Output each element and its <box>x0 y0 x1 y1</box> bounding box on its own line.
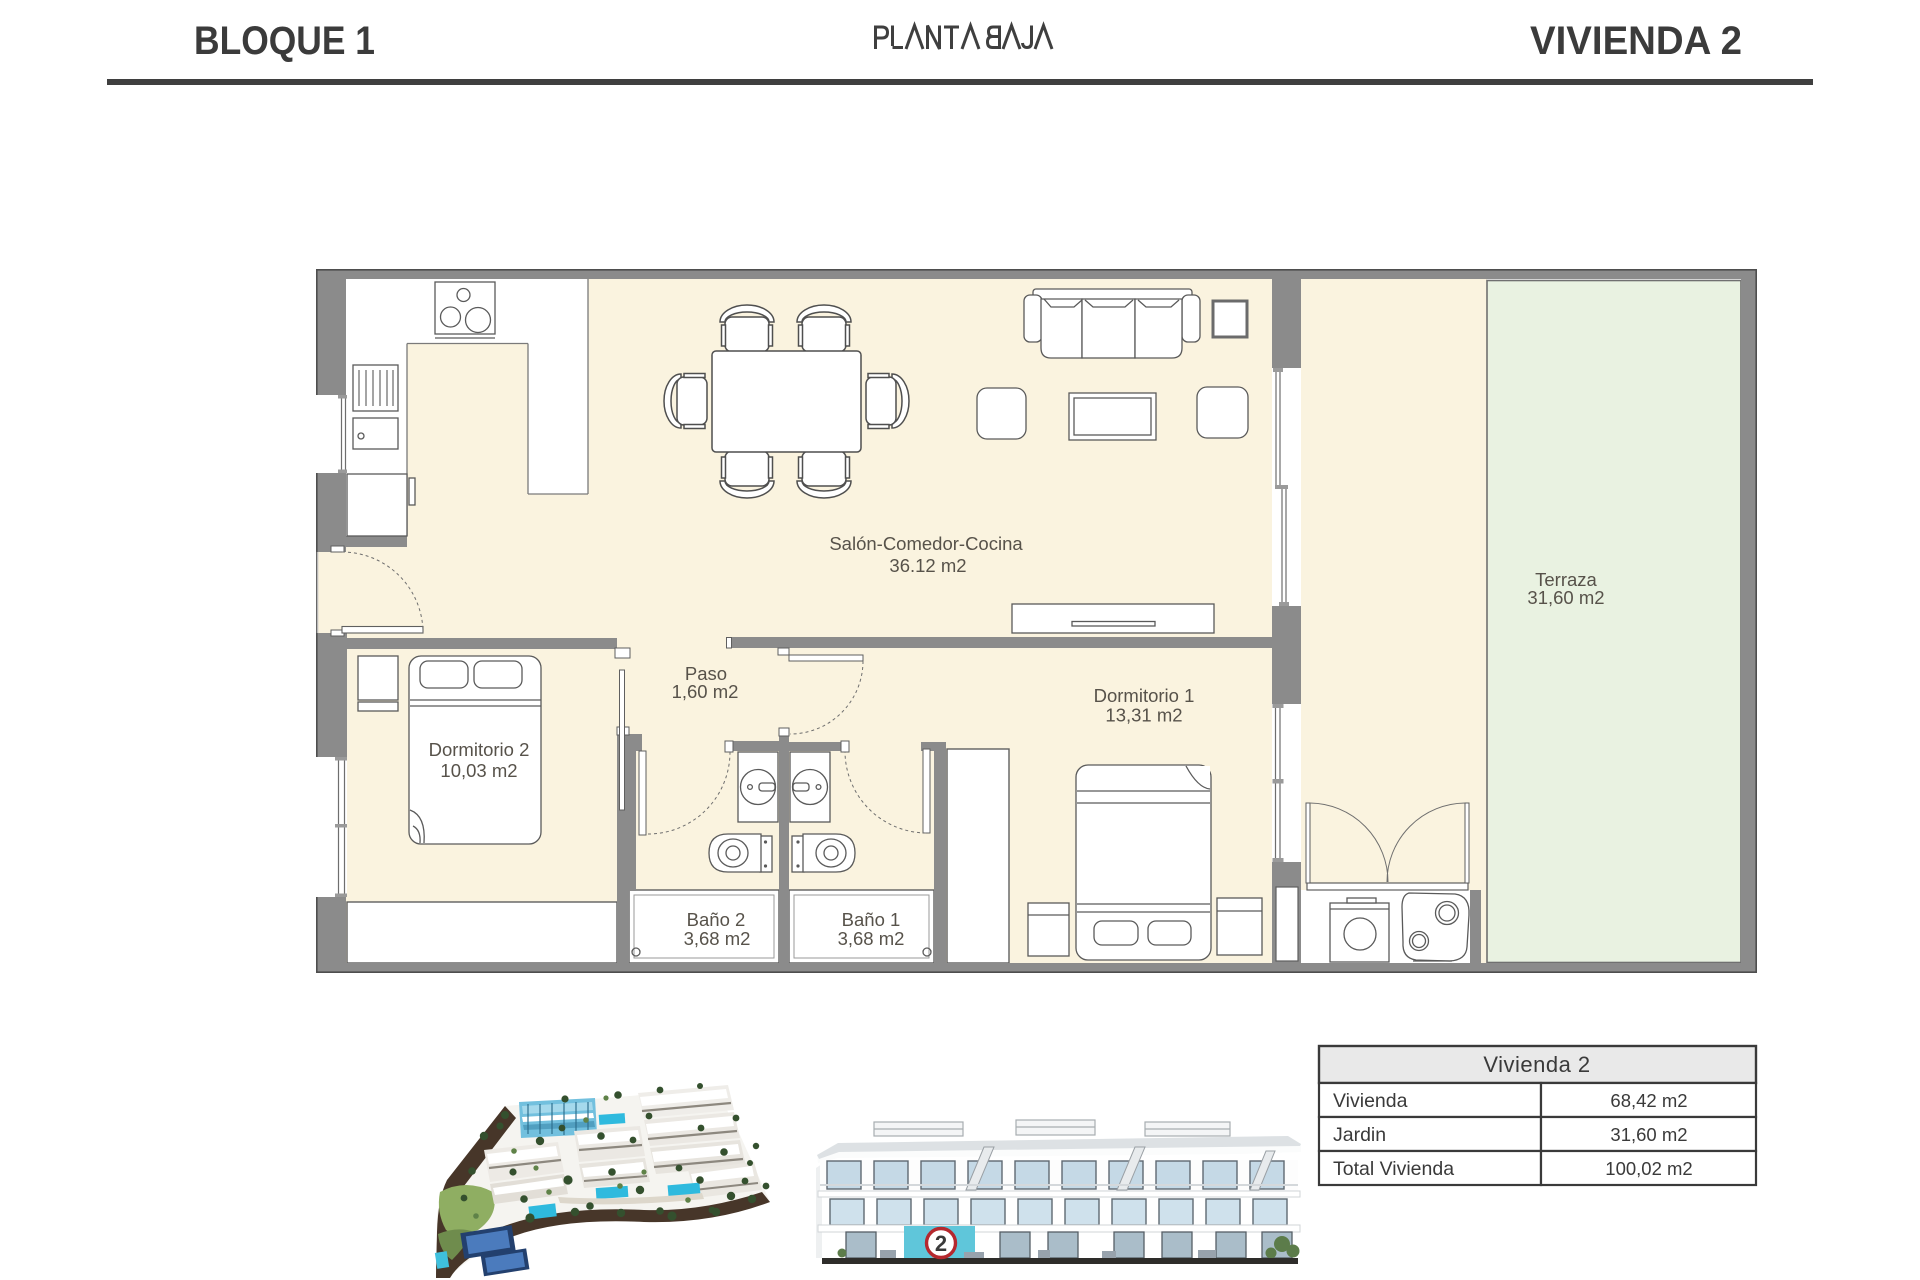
svg-text:13,31 m2: 13,31 m2 <box>1105 705 1182 726</box>
svg-text:31,60 m2: 31,60 m2 <box>1610 1124 1687 1145</box>
svg-text:Total Vivienda: Total Vivienda <box>1333 1158 1454 1180</box>
svg-text:100,02 m2: 100,02 m2 <box>1605 1158 1692 1179</box>
svg-text:Dormitorio 1: Dormitorio 1 <box>1094 685 1195 706</box>
svg-text:Dormitorio 2: Dormitorio 2 <box>429 739 530 760</box>
svg-text:VIVIENDA 2: VIVIENDA 2 <box>1530 19 1742 63</box>
svg-text:68,42 m2: 68,42 m2 <box>1610 1090 1687 1111</box>
svg-text:Salón-Comedor-Cocina: Salón-Comedor-Cocina <box>829 533 1023 554</box>
svg-text:3,68 m2: 3,68 m2 <box>684 928 751 949</box>
svg-text:10,03 m2: 10,03 m2 <box>440 760 517 781</box>
svg-text:Baño 1: Baño 1 <box>842 909 901 930</box>
svg-text:Vivienda 2: Vivienda 2 <box>1483 1052 1590 1077</box>
svg-text:Jardin: Jardin <box>1333 1124 1386 1146</box>
svg-text:Vivienda: Vivienda <box>1333 1090 1408 1112</box>
svg-text:2: 2 <box>935 1231 947 1256</box>
svg-text:31,60 m2: 31,60 m2 <box>1527 587 1604 608</box>
svg-text:36.12 m2: 36.12 m2 <box>889 555 966 576</box>
svg-text:3,68 m2: 3,68 m2 <box>838 928 905 949</box>
svg-text:Baño 2: Baño 2 <box>687 909 746 930</box>
svg-text:1,60 m2: 1,60 m2 <box>672 681 739 702</box>
svg-text:BLOQUE 1: BLOQUE 1 <box>194 19 375 63</box>
